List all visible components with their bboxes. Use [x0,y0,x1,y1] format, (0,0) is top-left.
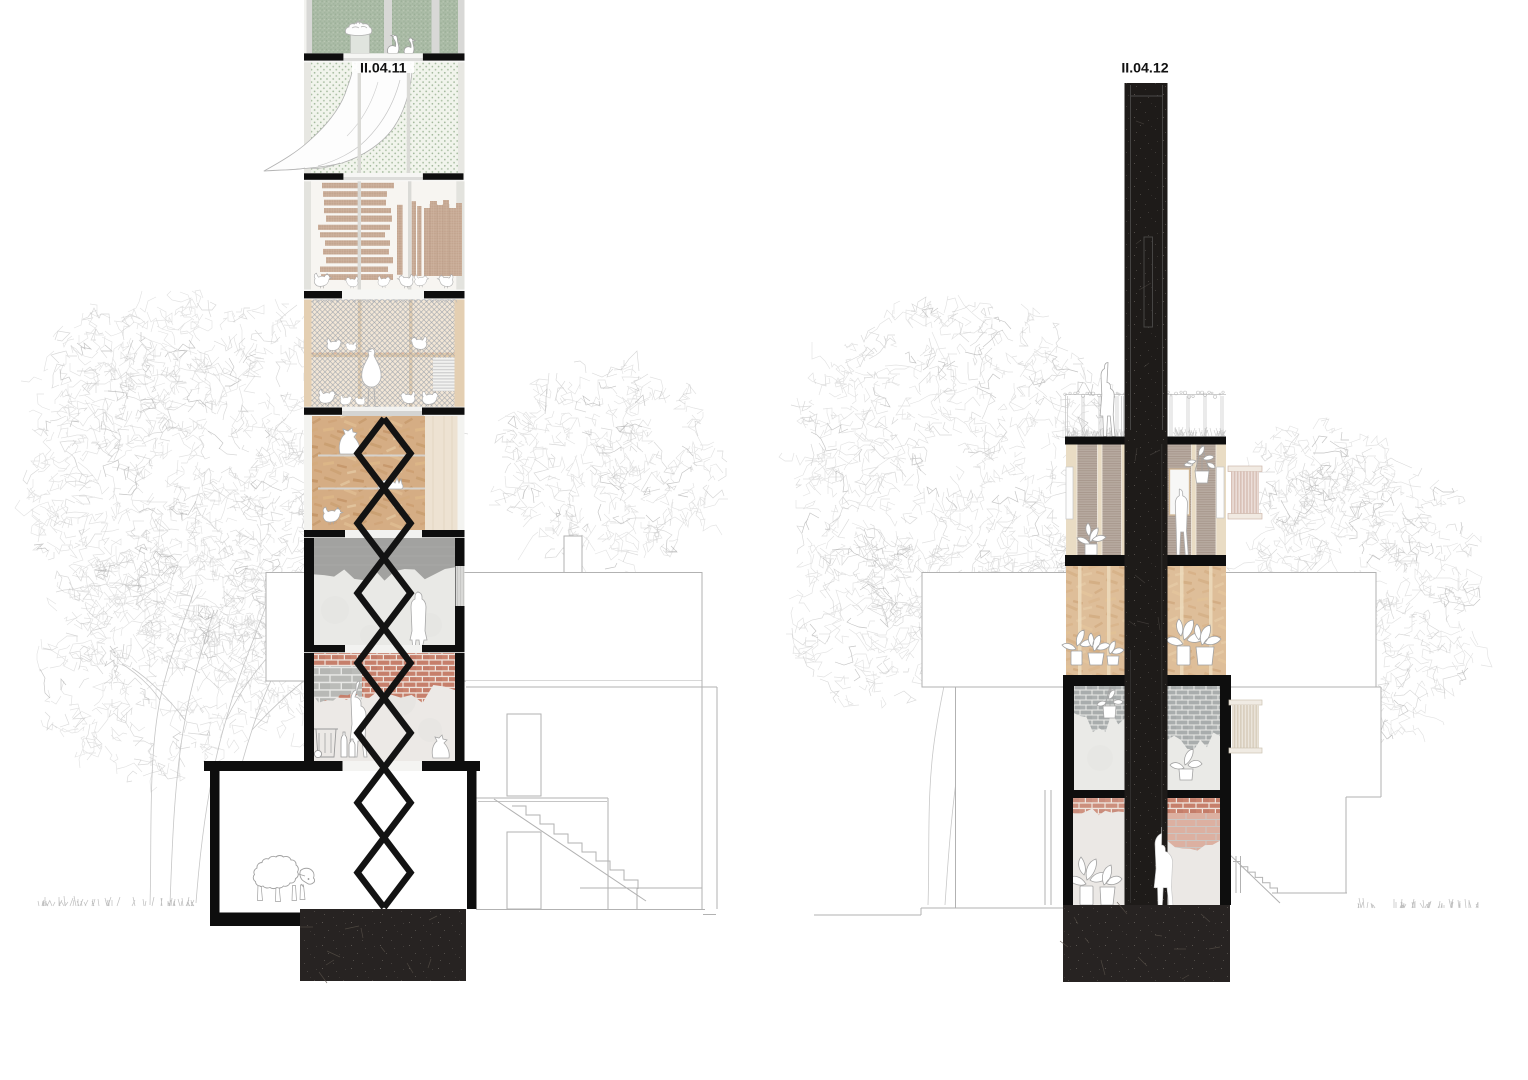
svg-text:II.04.11: II.04.11 [360,60,407,76]
svg-text:II.04.12: II.04.12 [1121,61,1168,77]
